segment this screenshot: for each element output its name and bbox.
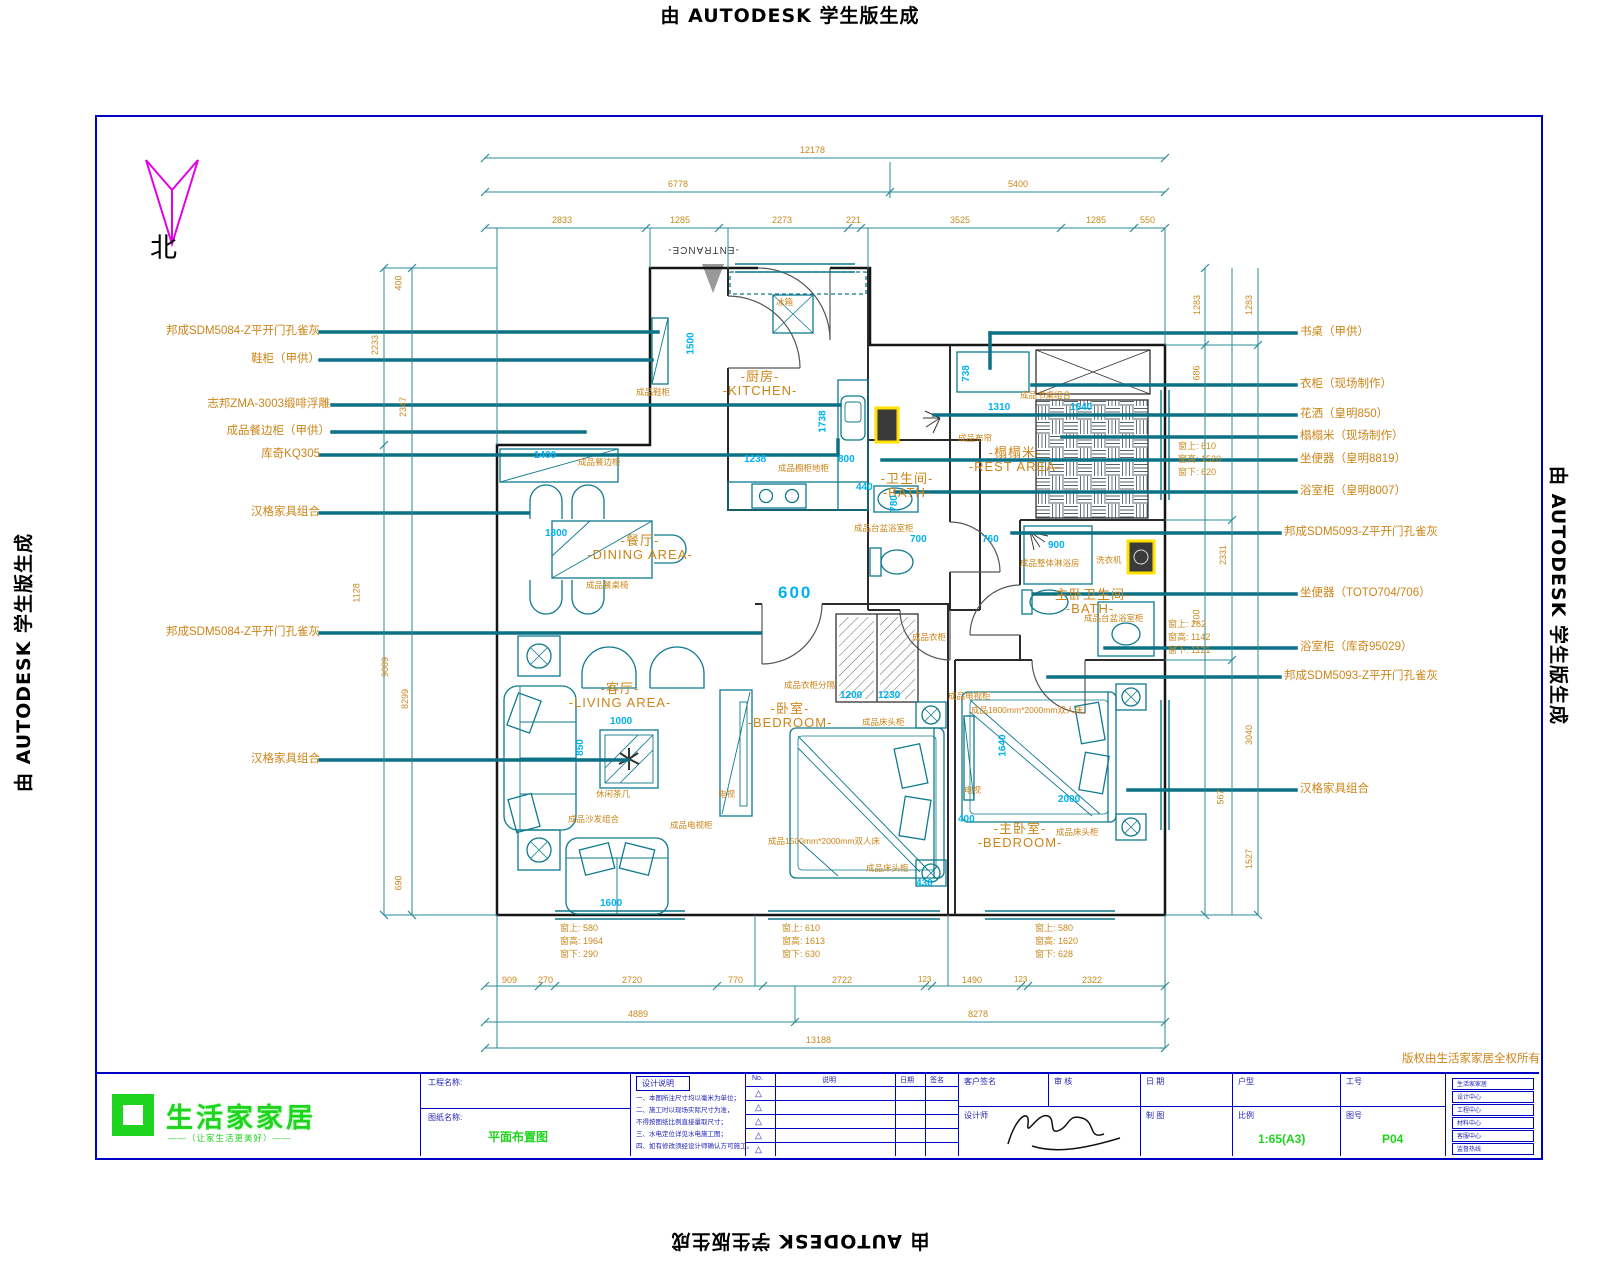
dim-top3-5: 3525 [950, 216, 970, 226]
dim-1500: 1500 [686, 332, 697, 354]
sig-label-designer: 设计师 [964, 1110, 988, 1121]
revision-mark: △ [755, 1130, 762, 1141]
info-mini-text: 监督热线 [1457, 1145, 1481, 1155]
revision-mark: △ [755, 1102, 762, 1113]
dim-738: 738 [961, 365, 972, 382]
cad-sheet: 由 AUTODESK 学生版生成 由 AUTODESK 学生版生成 由 AUTO… [0, 0, 1600, 1280]
info-mini-text: 材料中心 [1457, 1119, 1481, 1129]
dim-1310: 1310 [988, 402, 1010, 413]
callout-door-3: 邦成SDM5093-Z平开门孔雀灰 [1284, 526, 1438, 539]
window-dims-2: 窗上: 610窗高: 1613窗下: 630 [782, 922, 825, 961]
dim-door-600: 600 [778, 584, 812, 603]
dim-1000: 1000 [610, 716, 632, 727]
callout-shoe-cabinet: 鞋柜（甲供） [95, 353, 320, 366]
living-furniture [504, 636, 752, 914]
callout-furniture-combo-3: 汉格家具组合 [1300, 783, 1369, 796]
note-bed-1500: 成品1500mm*2000mm双人床 [768, 837, 880, 846]
info-mini-box: 工程中心 [1452, 1104, 1534, 1116]
dim-r-3: 686 [1193, 365, 1203, 380]
stamp-right: 由 AUTODESK 学生版生成 [1547, 466, 1568, 725]
north-arrow-icon [146, 160, 198, 244]
note-tv-2: 电视 [964, 786, 981, 795]
dim-r-5: 700 [1193, 609, 1203, 624]
dim-1738: 1738 [818, 410, 829, 432]
dim-b1-3: 2720 [622, 976, 642, 986]
sheet-number: P04 [1382, 1132, 1403, 1146]
info-mini-text: 设计中心 [1457, 1093, 1481, 1103]
window-dims-1: 窗上: 580窗高: 1964窗下: 290 [560, 922, 603, 961]
dim-b1-4: 770 [728, 976, 743, 986]
note-nightstand-1: 成品床头柜 [862, 718, 905, 727]
tb-divider [958, 1072, 959, 1156]
dim-1230: 1230 [878, 690, 900, 701]
tb-divider [1445, 1072, 1446, 1156]
sheetno-label: 图号 [1346, 1110, 1362, 1121]
dim-1400: 1400 [534, 450, 556, 461]
callout-wardrobe: 衣柜（现场制作） [1300, 378, 1392, 391]
callout-sideboard: 成品餐边柜（甲供） [105, 425, 330, 438]
design-notes-title: 设计说明 [642, 1078, 674, 1089]
info-row [1232, 1106, 1445, 1107]
note-dining-set: 成品餐桌椅 [586, 581, 629, 590]
callout-furniture-combo-2: 汉格家具组合 [95, 753, 320, 766]
logo-tagline: ——（让家生活更美好）—— [168, 1134, 292, 1143]
dim-top3-7: 550 [1140, 216, 1155, 226]
dim-top2-1: 6778 [668, 180, 688, 190]
scale-label: 比例 [1238, 1110, 1254, 1121]
dim-b1-8: 123 [1014, 976, 1027, 985]
revision-mark: △ [755, 1088, 762, 1099]
rev-header-date: 日期 [900, 1075, 914, 1085]
callout-shower-head: 花洒（皇明850） [1300, 408, 1388, 421]
tb-divider [630, 1072, 631, 1156]
dim-l-7: 690 [395, 875, 405, 890]
dim-top3-3: 2273 [772, 216, 792, 226]
north-label: 北 [150, 234, 177, 264]
note-wardrobe-1: 成品衣柜分隔 [784, 681, 835, 690]
dim-r-8: 1527 [1245, 849, 1255, 869]
scale-value: 1:65(A3) [1258, 1132, 1305, 1146]
entrance-label: -ENTRANCE- [648, 244, 758, 255]
dim-r-1: 1283 [1193, 295, 1203, 315]
callout-furniture-combo-1: 汉格家具组合 [95, 506, 320, 519]
dim-total-bottom: 13188 [806, 1036, 831, 1046]
stamp-bottom: 由 AUTODESK 学生版生成 [630, 1230, 970, 1251]
dim-b2-2: 8278 [968, 1010, 988, 1020]
note-nightstand-2: 成品床头柜 [866, 864, 909, 873]
rev-header-sign: 签名 [930, 1075, 944, 1085]
dim-top3-4: 221 [846, 216, 861, 226]
project-name-label: 工程名称: [428, 1077, 462, 1088]
note-tv-1: 电视 [718, 790, 735, 799]
info-mini-box: 材料中心 [1452, 1117, 1534, 1129]
rev-header-no: No. [752, 1075, 763, 1082]
rev-row [745, 1086, 958, 1087]
dim-top3-1: 2833 [552, 216, 572, 226]
note-fridge: 冰箱 [776, 298, 793, 307]
rev-row [745, 1142, 958, 1143]
info-label-jobno: 工号 [1346, 1076, 1362, 1087]
revision-mark: △ [755, 1144, 762, 1155]
dim-l-3: 2347 [399, 397, 409, 417]
callout-desk: 书桌（甲供） [1300, 326, 1369, 339]
sig-col [1140, 1072, 1141, 1156]
room-bedroom1: -卧室--BEDROOM- [735, 702, 845, 731]
room-living: -客厅--LIVING AREA- [555, 682, 685, 711]
revision-mark: △ [755, 1116, 762, 1127]
note-curtain: 成品布帘 [958, 434, 992, 443]
note-tv-cabinet-1: 成品电视柜 [670, 821, 713, 830]
note-nightstand-3: 成品床头柜 [1056, 828, 1099, 837]
dim-r-2: 1283 [1245, 295, 1255, 315]
callout-kitchen-cabinet: 志邦ZMA-3003缎啡浮雕 [105, 398, 330, 411]
note-vanity-b1: 成品台盆浴室柜 [854, 524, 914, 533]
dim-l-6: 8299 [401, 689, 411, 709]
info-label-type: 户型 [1238, 1076, 1254, 1087]
note-sofa-set: 成品沙发组合 [568, 815, 619, 824]
window-dims-4: 窗上: 610窗高: 1520窗下: 620 [1178, 440, 1221, 479]
window-dims-5: 窗上: 262窗高: 1142窗下: 1121 [1168, 618, 1210, 657]
tb-divider [420, 1072, 421, 1156]
dim-800: 800 [838, 454, 855, 465]
dim-r-6: 3040 [1245, 725, 1255, 745]
logo-text: 生活家家居 [166, 1096, 316, 1135]
dim-400-m: 400 [958, 814, 975, 825]
logo-square-icon [112, 1094, 154, 1136]
dim-440: 440 [856, 482, 873, 493]
drawing-name-label: 图纸名称: [428, 1112, 462, 1123]
sig-label-client: 客户签名 [964, 1076, 996, 1087]
info-mini-box: 客服中心 [1452, 1130, 1534, 1142]
note-vanity-m: 成品台盆浴室柜 [1084, 614, 1144, 623]
dim-850: 850 [575, 739, 586, 756]
window-dims-3: 窗上: 580窗高: 1620窗下: 628 [1035, 922, 1078, 961]
callout-vanity-2: 浴室柜（库奇95029） [1300, 641, 1412, 654]
callout-sink: 库奇KQ305 [95, 448, 320, 461]
dim-b1-1: 909 [502, 976, 517, 986]
dim-l-5: 9089 [381, 657, 391, 677]
note-tv-cabinet-2: 成品电视柜 [948, 692, 991, 701]
design-notes-line: 一、本图所注尺寸均以毫米为单位； [636, 1094, 740, 1104]
dim-430: 430 [916, 878, 933, 889]
design-notes-line: 四、如有修改须经设计师确认方可施工。 [636, 1142, 753, 1152]
rev-row [745, 1128, 958, 1129]
room-dining: -餐厅--DINING AREA- [575, 534, 705, 563]
room-bath1: -卫生间--BATH- [862, 472, 952, 501]
note-base-cab: 成品橱柜地柜 [778, 464, 829, 473]
drawing-name-value: 平面布置图 [488, 1128, 548, 1145]
note-tea-table: 休闲茶几 [596, 790, 630, 799]
tb-line [420, 1108, 630, 1109]
callout-toilet-2: 坐便器（TOTO704/706） [1300, 587, 1431, 600]
dim-top2-2: 5400 [1008, 180, 1028, 190]
dim-1640: 1640 [1070, 402, 1092, 413]
callout-toilet-1: 坐便器（皇明8819） [1300, 453, 1406, 466]
dim-l-4: 1128 [353, 583, 363, 602]
sig-label-draft: 制 图 [1146, 1110, 1164, 1121]
rev-header-desc: 说明 [822, 1075, 836, 1085]
sig-label-review: 审 核 [1054, 1076, 1072, 1087]
dim-1800: 1800 [545, 528, 567, 539]
room-kitchen: -厨房--KITCHEN- [705, 370, 815, 399]
dim-b1-2: 270 [538, 976, 553, 986]
room-rest: -榻榻米--REST AREA- [955, 446, 1075, 475]
dim-1200: 1200 [840, 690, 862, 701]
callout-door-2: 邦成SDM5084-Z平开门孔雀灰 [95, 626, 320, 639]
dim-l-2: 2233 [371, 335, 381, 355]
dim-780: 780 [889, 495, 900, 512]
sig-label-date: 日 期 [1146, 1076, 1164, 1087]
dim-900: 900 [1048, 540, 1065, 551]
rev-row [745, 1114, 958, 1115]
dim-760: 760 [982, 534, 999, 545]
note-bed-1800: 成品1800mm*2000mm双人床 [971, 706, 1083, 715]
info-mini-box: 监督热线 [1452, 1143, 1534, 1155]
design-notes-line: 不得按图纸比例直接量取尺寸； [636, 1118, 727, 1128]
dim-b1-6: 123 [918, 976, 931, 985]
dim-total-top: 12178 [800, 146, 825, 156]
note-washer: 洗衣机 [1096, 556, 1122, 565]
callout-tatami: 榻榻米（现场制作） [1300, 430, 1404, 443]
dim-b1-5: 2722 [832, 976, 852, 986]
info-mini-text: 生活家家居 [1457, 1080, 1487, 1090]
dim-b1-7: 1490 [962, 976, 982, 986]
info-mini-box: 生活家家居 [1452, 1078, 1534, 1090]
dim-top3-2: 1285 [670, 216, 690, 226]
note-desk-set: 成品书桌组合 [1020, 391, 1071, 400]
design-notes-line: 二、施工时以现场实际尺寸为准， [636, 1106, 734, 1116]
note-wardrobe-2: 成品衣柜 [912, 633, 946, 642]
dim-2000: 2000 [1058, 794, 1080, 805]
note-shoe-cab: 成品鞋柜 [636, 388, 670, 397]
info-col [1340, 1072, 1341, 1156]
rev-row [745, 1100, 958, 1101]
design-notes-line: 三、水电定位详见水电施工图； [636, 1130, 727, 1140]
dim-1640-m: 1640 [998, 734, 1009, 756]
note-sideboard: 成品餐边柜 [578, 458, 621, 467]
dim-b2-1: 4889 [628, 1010, 648, 1020]
dim-700: 700 [910, 534, 927, 545]
stamp-top: 由 AUTODESK 学生版生成 [620, 6, 960, 27]
dim-b1-9: 2322 [1082, 976, 1102, 986]
dim-l-1: 400 [395, 275, 405, 290]
info-mini-text: 客服中心 [1457, 1132, 1481, 1142]
dim-r-7: 567 [1217, 789, 1227, 804]
dim-1238: 1238 [744, 454, 766, 465]
callout-door-1: 邦成SDM5084-Z平开门孔雀灰 [95, 325, 320, 338]
sig-row [958, 1106, 1232, 1107]
dim-1600: 1600 [600, 898, 622, 909]
info-mini-text: 工程中心 [1457, 1106, 1481, 1116]
callout-vanity-1: 浴室柜（皇明8007） [1300, 485, 1406, 498]
sig-col [1048, 1072, 1049, 1106]
info-mini-box: 设计中心 [1452, 1091, 1534, 1103]
note-shower-room: 成品整体淋浴房 [1020, 559, 1080, 568]
callout-door-4: 邦成SDM5093-Z平开门孔雀灰 [1284, 670, 1438, 683]
stamp-left: 由 AUTODESK 学生版生成 [14, 533, 35, 792]
dim-r-4: 2331 [1219, 545, 1229, 565]
tb-divider [1232, 1072, 1233, 1156]
copyright-text: 版权由生活家家居全权所有 [1240, 1053, 1540, 1066]
dim-top3-6: 1285 [1086, 216, 1106, 226]
